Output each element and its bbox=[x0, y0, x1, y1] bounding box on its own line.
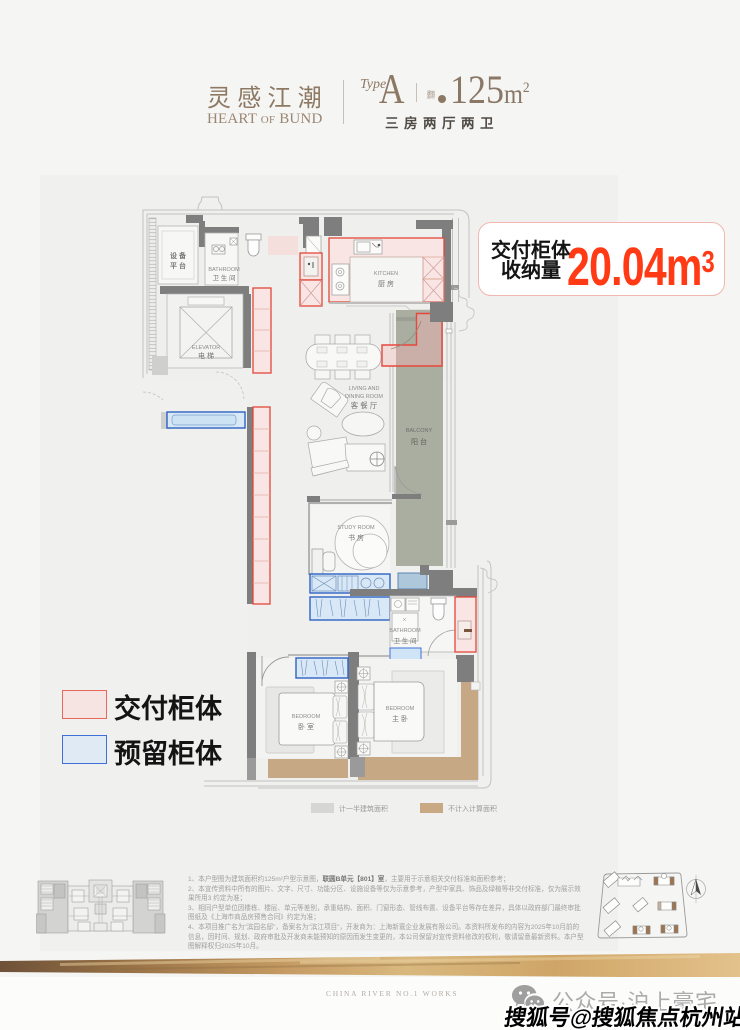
svg-text:卧 室: 卧 室 bbox=[298, 722, 314, 731]
svg-text:搜狐号@搜狐焦点杭州站: 搜狐号@搜狐焦点杭州站 bbox=[503, 1005, 740, 1030]
svg-text:主 卧: 主 卧 bbox=[392, 714, 408, 723]
svg-text:KITCHEN: KITCHEN bbox=[374, 271, 398, 277]
svg-text:客 餐 厅: 客 餐 厅 bbox=[351, 400, 378, 410]
svg-text:卫 生 间: 卫 生 间 bbox=[212, 273, 235, 282]
svg-text:书 房: 书 房 bbox=[348, 533, 364, 542]
svg-text:ELEVATOR: ELEVATOR bbox=[192, 345, 220, 351]
svg-text:DINING ROOM: DINING ROOM bbox=[345, 394, 383, 400]
svg-text:电 梯: 电 梯 bbox=[198, 351, 214, 360]
svg-text:阳 台: 阳 台 bbox=[411, 437, 427, 446]
svg-text:设 备: 设 备 bbox=[170, 251, 187, 260]
svg-text:计一半建筑面积: 计一半建筑面积 bbox=[339, 804, 388, 813]
svg-text:BEDROOM: BEDROOM bbox=[386, 706, 415, 712]
svg-text:STUDY ROOM: STUDY ROOM bbox=[337, 525, 375, 531]
svg-text:不计入计算面积: 不计入计算面积 bbox=[448, 804, 497, 813]
svg-text:BATHROOM: BATHROOM bbox=[208, 267, 240, 273]
svg-text:卫 生 间: 卫 生 间 bbox=[393, 636, 416, 645]
svg-text:BALCONY: BALCONY bbox=[406, 428, 433, 434]
svg-text:LIVING AND: LIVING AND bbox=[349, 386, 380, 392]
svg-text:BATHROOM: BATHROOM bbox=[389, 628, 421, 634]
svg-text:平 台: 平 台 bbox=[170, 261, 186, 270]
svg-text:厨 房: 厨 房 bbox=[378, 279, 394, 288]
svg-text:BEDROOM: BEDROOM bbox=[292, 714, 321, 720]
